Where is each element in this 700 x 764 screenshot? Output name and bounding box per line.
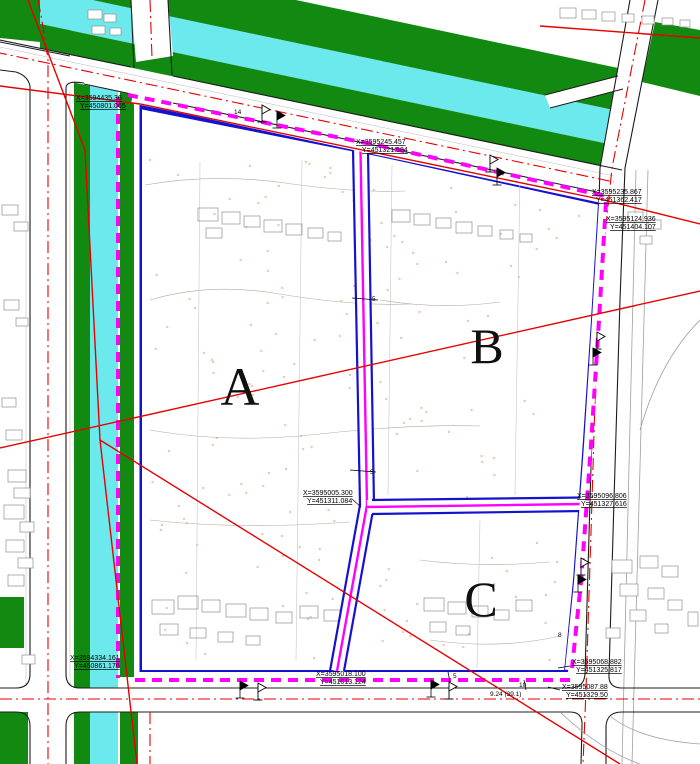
rect-decor [6, 430, 22, 440]
circle-decor [379, 381, 381, 383]
green-strip [120, 712, 138, 764]
circle-decor [456, 272, 458, 274]
circle-decor [313, 657, 315, 659]
circle-decor [204, 653, 206, 655]
circle-decor [402, 631, 404, 633]
parcel-divider-horizontal [367, 498, 584, 515]
circle-decor [267, 302, 269, 304]
coord-label: Y=451325.817 [576, 667, 622, 674]
rect-decor [680, 20, 690, 27]
rect-decor [640, 236, 652, 244]
coord-label: Y=451329.50 [566, 692, 608, 699]
rect-decor [622, 14, 634, 22]
circle-decor [239, 259, 241, 261]
circle-decor [228, 198, 230, 200]
rect-decor [4, 505, 24, 519]
rect-decor [662, 566, 678, 577]
rect-decor [18, 558, 33, 568]
coord-label: Y=451311.084 [307, 498, 352, 505]
tick-label: 10 [519, 682, 527, 689]
circle-decor [212, 444, 214, 446]
circle-decor [393, 235, 395, 237]
tick-label: 8 [558, 632, 562, 639]
circle-decor [382, 640, 384, 642]
rect-decor [688, 612, 698, 626]
circle-decor [332, 598, 334, 600]
circle-decor [385, 398, 387, 400]
circle-decor [556, 237, 558, 239]
circle-decor [515, 596, 517, 598]
circle-decor [250, 324, 252, 326]
circle-decor [539, 209, 541, 211]
rect-decor [2, 205, 18, 215]
circle-decor [401, 241, 403, 243]
rect-decor [8, 470, 26, 482]
circle-decor [293, 363, 295, 365]
rect-decor [14, 488, 30, 498]
coord-label: Y=451321.584 [362, 147, 408, 154]
circle-decor [257, 202, 259, 204]
circle-decor [154, 348, 156, 350]
circle-decor [481, 461, 483, 463]
circle-decor [480, 455, 482, 457]
circle-decor [450, 187, 452, 189]
circle-decor [443, 644, 445, 646]
circle-decor [462, 646, 464, 648]
coord-label: Y=451327.616 [581, 501, 627, 508]
circle-decor [267, 270, 269, 272]
circle-decor [532, 413, 534, 415]
circle-decor [416, 470, 418, 472]
circle-decor [168, 450, 170, 452]
tick-label: 14 [234, 109, 242, 116]
circle-decor [262, 485, 264, 487]
circle-decor [281, 535, 283, 537]
circle-decor [493, 457, 495, 459]
circle-decor [455, 211, 457, 213]
circle-decor [420, 407, 422, 409]
rect-decor [2, 398, 16, 407]
rect-decor [14, 222, 28, 231]
circle-decor [506, 570, 508, 572]
rect-decor [560, 8, 576, 18]
coord-label: Y=451404.107 [610, 224, 656, 231]
rect-decor [648, 588, 664, 599]
rect-decor [8, 575, 24, 586]
rect-decor [104, 14, 116, 22]
circle-decor [409, 635, 411, 637]
circle-decor [249, 165, 251, 167]
circle-decor [324, 176, 326, 178]
circle-decor [467, 320, 469, 322]
circle-decor [421, 420, 423, 422]
rect-decor [110, 28, 121, 35]
rect-decor [655, 624, 668, 633]
rect-decor [88, 10, 102, 19]
circle-decor [329, 172, 331, 174]
circle-decor [396, 433, 398, 435]
circle-decor [183, 518, 185, 520]
rect-decor [662, 18, 673, 25]
circle-decor [261, 533, 263, 535]
coord-label: X=3595068.882 [572, 659, 622, 666]
circle-decor [319, 548, 321, 550]
coord-label: Y=451013.124 [320, 679, 366, 686]
circle-decor [262, 370, 264, 372]
parcel-label-c: C [464, 571, 497, 627]
tick-label: 5 [370, 469, 374, 476]
circle-decor [386, 289, 388, 291]
circle-decor [166, 607, 168, 609]
green-strip [0, 712, 28, 764]
rect-decor [6, 540, 24, 552]
rect-decor [602, 12, 615, 21]
circle-decor [383, 609, 385, 611]
circle-decor [166, 326, 168, 328]
circle-decor [416, 263, 418, 265]
circle-decor [448, 431, 450, 433]
circle-decor [313, 339, 315, 341]
rect-decor [20, 522, 34, 532]
circle-decor [349, 374, 351, 376]
circle-decor [556, 561, 558, 563]
tick-label: 5 [372, 296, 376, 303]
tick-label: 5 [453, 673, 457, 680]
circle-decor [289, 511, 291, 513]
rect-decor [642, 16, 654, 24]
circle-decor [212, 372, 214, 374]
circle-decor [544, 622, 546, 624]
circle-decor [212, 361, 214, 363]
circle-decor [376, 322, 378, 324]
coord-label: Y=450801.065 [80, 103, 126, 110]
circle-decor [518, 276, 520, 278]
rect-decor [22, 655, 35, 664]
circle-decor [177, 174, 179, 176]
circle-decor [412, 252, 414, 254]
circle-decor [385, 579, 387, 581]
circle-decor [305, 592, 307, 594]
circle-decor [514, 204, 516, 206]
circle-decor [213, 213, 215, 215]
coord-label: Y=450861.176 [74, 663, 120, 670]
coord-label: X=3595018.100 [316, 671, 366, 678]
circle-decor [278, 185, 280, 187]
circle-decor [185, 572, 187, 574]
circle-decor [299, 546, 301, 548]
circle-decor [548, 659, 550, 661]
circle-decor [445, 261, 447, 263]
circle-decor [160, 529, 162, 531]
rect-decor [92, 26, 105, 34]
circle-decor [341, 191, 343, 193]
coord-label: X=3595245.457 [356, 139, 406, 146]
circle-decor [416, 603, 418, 605]
circle-decor [554, 581, 556, 583]
circle-decor [487, 315, 489, 317]
circle-decor [536, 542, 538, 544]
coord-label: X=3595124.936 [606, 216, 656, 223]
tick-label: 9.24 (39.1) [490, 691, 521, 698]
circle-decor [284, 424, 286, 426]
circle-decor [493, 474, 495, 476]
circle-decor [156, 274, 158, 276]
circle-decor [578, 215, 580, 217]
site-plan-map: X=3594435.36 Y=450801.065 X=3595245.457 … [0, 0, 700, 764]
circle-decor [151, 481, 153, 483]
parcel-label-b: B [470, 318, 503, 374]
circle-decor [285, 468, 287, 470]
circle-decor [388, 568, 390, 570]
coord-label: Y=451362.417 [596, 197, 642, 204]
circle-decor [548, 228, 550, 230]
circle-decor [425, 411, 427, 413]
circle-decor [380, 222, 382, 224]
rect-decor [630, 610, 646, 621]
circle-decor [386, 246, 388, 248]
circle-decor [282, 605, 284, 607]
rect-decor [582, 10, 596, 19]
circle-decor [283, 376, 285, 378]
circle-decor [267, 250, 269, 252]
circle-decor [463, 357, 465, 359]
circle-decor [310, 446, 312, 448]
coord-label: X=3594435.36 [76, 95, 122, 102]
circle-decor [545, 594, 547, 596]
circle-decor [403, 422, 405, 424]
circle-decor [346, 313, 348, 315]
circle-decor [302, 448, 304, 450]
circle-decor [510, 265, 512, 267]
circle-decor [318, 559, 320, 561]
circle-decor [308, 163, 310, 165]
circle-decor [256, 566, 258, 568]
green-strip [120, 84, 134, 677]
rect-decor [620, 584, 638, 596]
rect-decor [612, 560, 632, 573]
circle-decor [211, 359, 213, 361]
circle-decor [194, 307, 196, 309]
circle-decor [203, 352, 205, 354]
rect-decor [4, 300, 19, 310]
rect-decor [640, 556, 658, 568]
coord-label: X=3595235.867 [592, 189, 642, 196]
circle-decor [523, 400, 525, 402]
circle-decor [327, 509, 329, 511]
circle-decor [379, 585, 381, 587]
circle-decor [277, 224, 279, 226]
circle-decor [339, 335, 341, 337]
rect-decor [668, 600, 682, 610]
circle-decor [535, 248, 537, 250]
circle-decor [202, 487, 204, 489]
rect-decor [606, 628, 620, 638]
coord-label: X=3595087.88 [562, 684, 608, 691]
circle-decor [305, 161, 307, 163]
coord-label: X=3595096.806 [577, 493, 627, 500]
circle-decor [418, 311, 420, 313]
circle-decor [161, 524, 163, 526]
circle-decor [164, 629, 166, 631]
circle-decor [149, 159, 151, 161]
circle-decor [260, 350, 262, 352]
circle-decor [333, 520, 335, 522]
rect-decor [16, 318, 28, 326]
circle-decor [409, 418, 411, 420]
coord-label: X=3594334.161 [70, 655, 120, 662]
circle-decor [470, 409, 472, 411]
circle-decor [329, 167, 331, 169]
green-strip [0, 597, 24, 648]
parcel-label-a: A [221, 357, 260, 417]
circle-decor [349, 387, 351, 389]
circle-decor [281, 287, 283, 289]
circle-decor [398, 278, 400, 280]
circle-decor [282, 296, 284, 298]
circle-decor [268, 472, 270, 474]
circle-decor [188, 298, 190, 300]
circle-decor [406, 620, 408, 622]
circle-decor [264, 196, 266, 198]
cad-site-plan-window: X=3594435.36 Y=450801.065 X=3595245.457 … [0, 0, 700, 764]
circle-decor [228, 494, 230, 496]
coord-label: X=3595005.300 [303, 490, 353, 497]
circle-decor [245, 492, 247, 494]
circle-decor [240, 483, 242, 485]
circle-decor [400, 337, 402, 339]
circle-decor [186, 642, 188, 644]
circle-decor [275, 333, 277, 335]
circle-decor [178, 505, 180, 507]
circle-decor [491, 557, 493, 559]
